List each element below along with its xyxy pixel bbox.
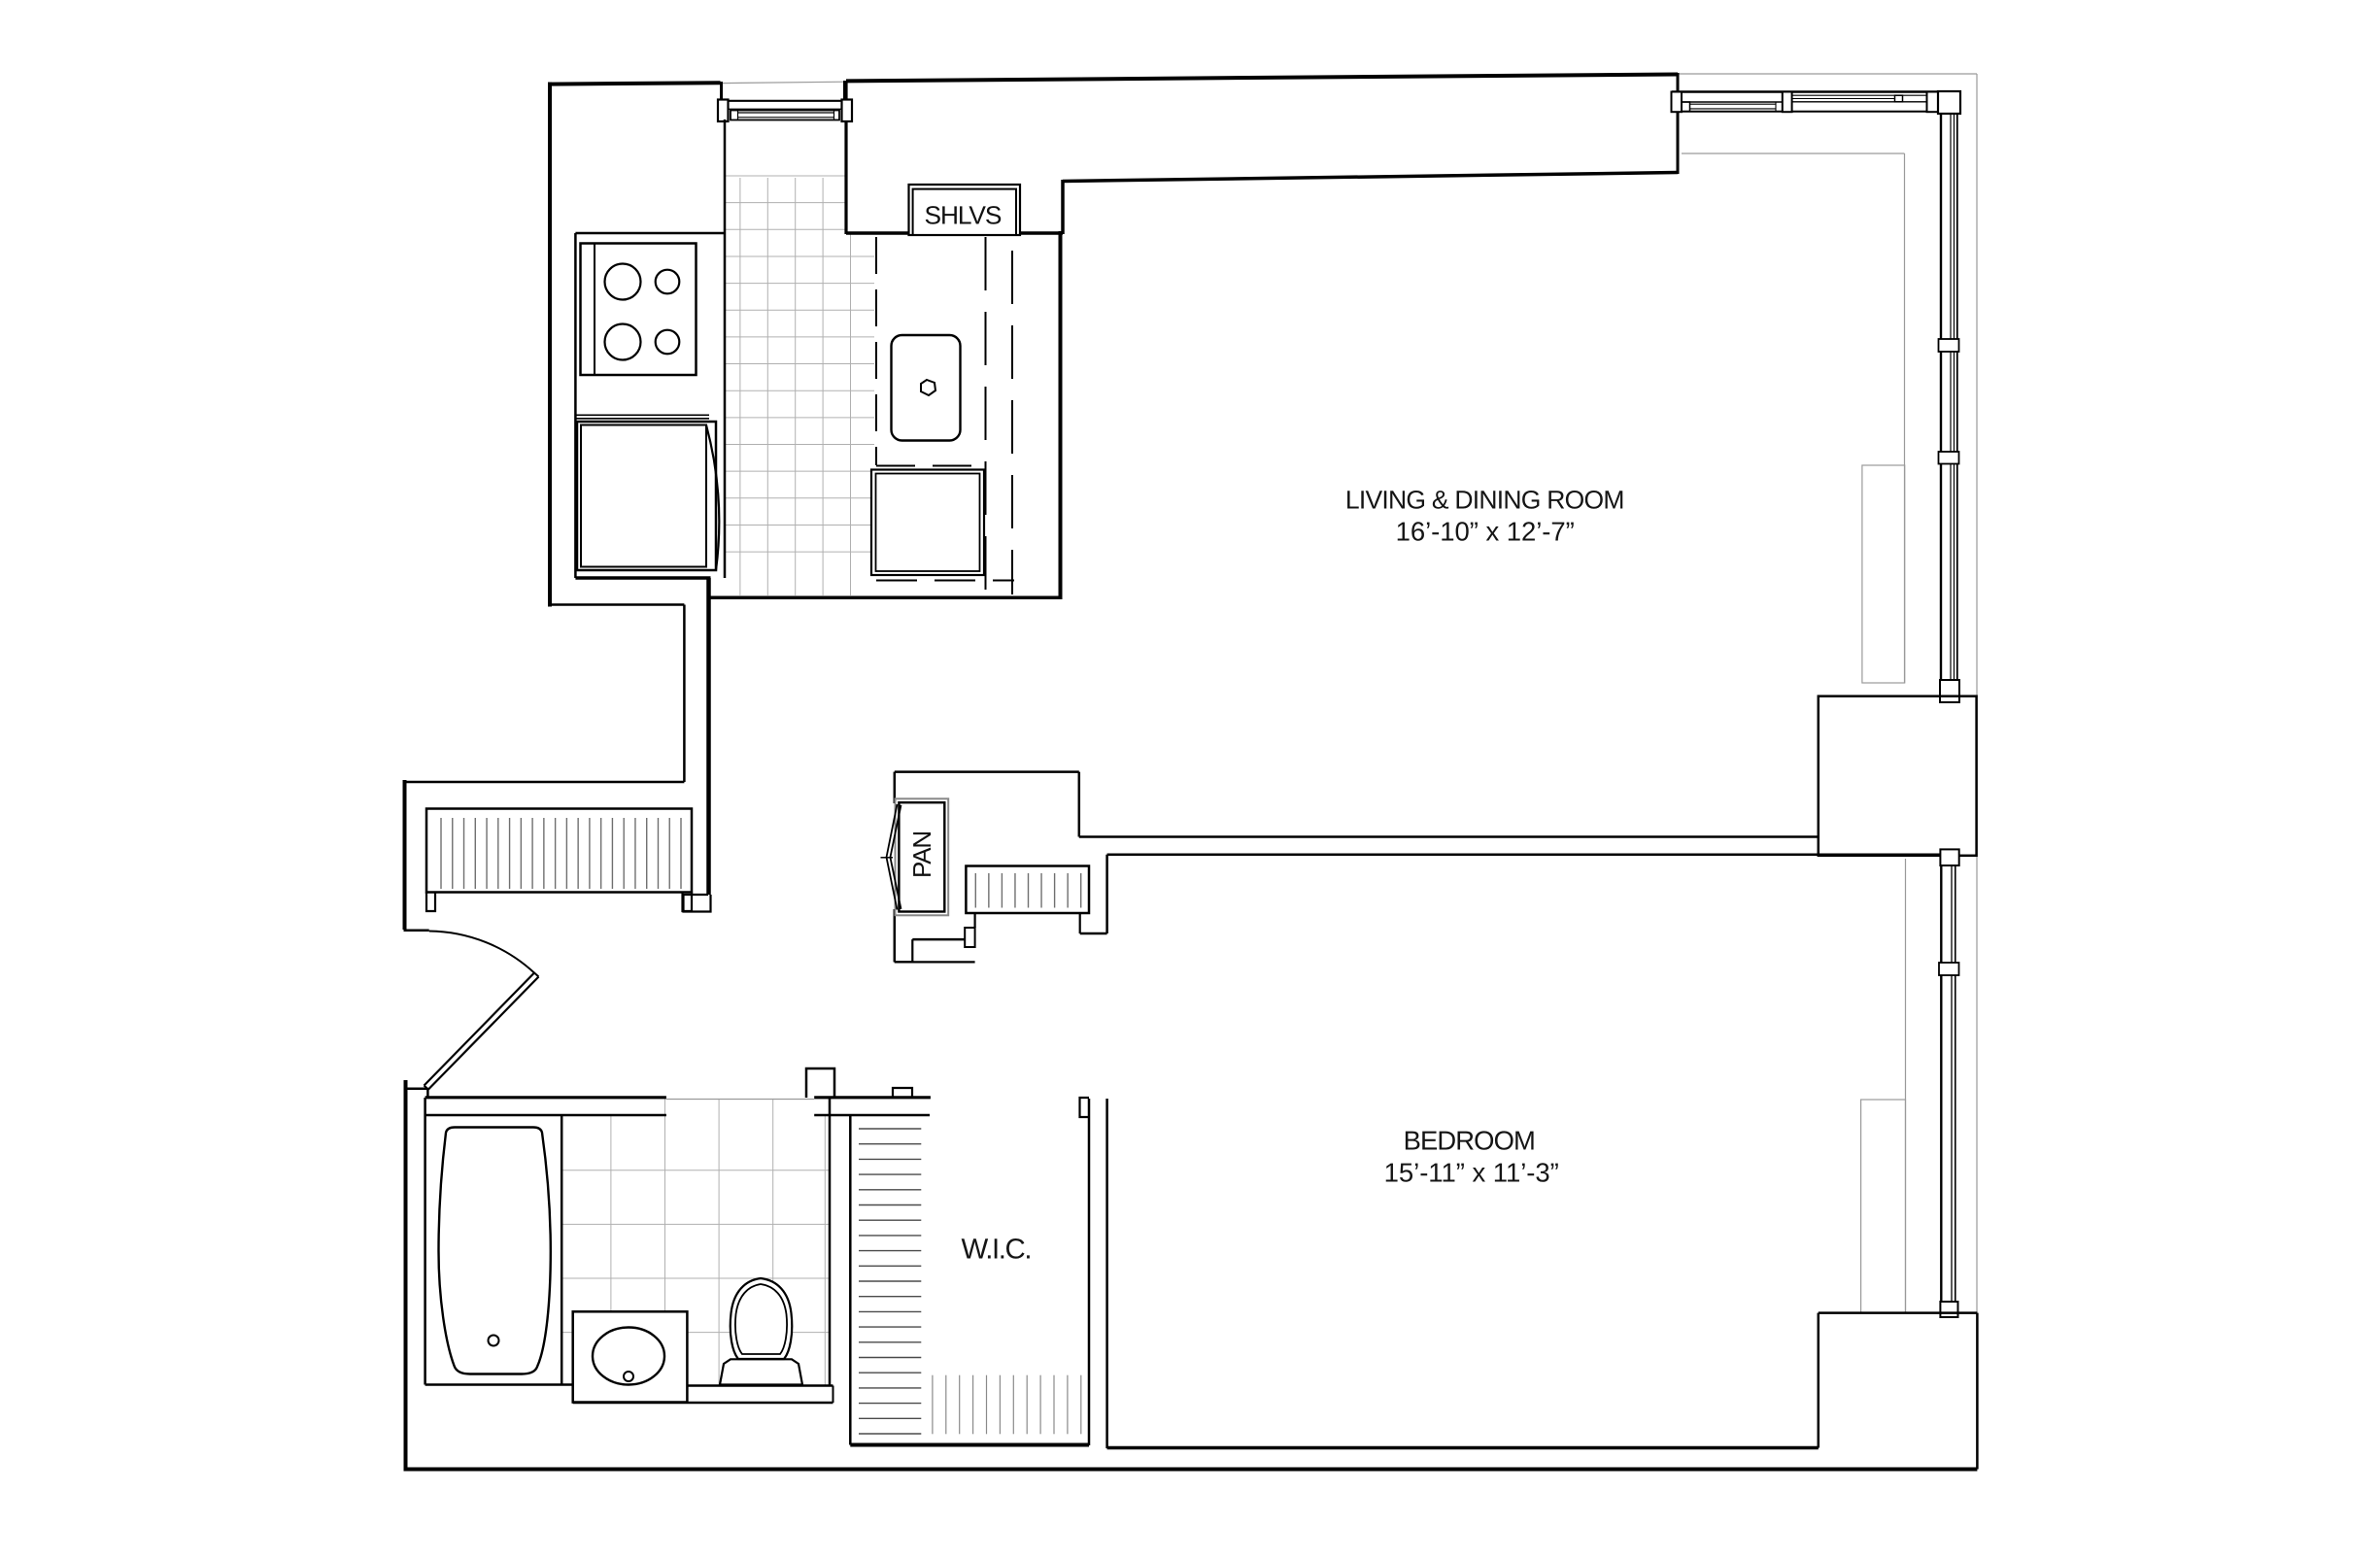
svg-text:15’-11” x 11’-3”: 15’-11” x 11’-3” bbox=[1384, 1158, 1559, 1188]
svg-text:16’-10” x 12’-7”: 16’-10” x 12’-7” bbox=[1396, 516, 1575, 546]
svg-text:BEDROOM: BEDROOM bbox=[1404, 1126, 1535, 1156]
svg-text:LIVING & DINING ROOM: LIVING & DINING ROOM bbox=[1345, 486, 1624, 515]
svg-text:SHLVS: SHLVS bbox=[925, 200, 1002, 229]
svg-text:PAN: PAN bbox=[907, 831, 936, 878]
svg-text:W.I.C.: W.I.C. bbox=[961, 1233, 1031, 1265]
